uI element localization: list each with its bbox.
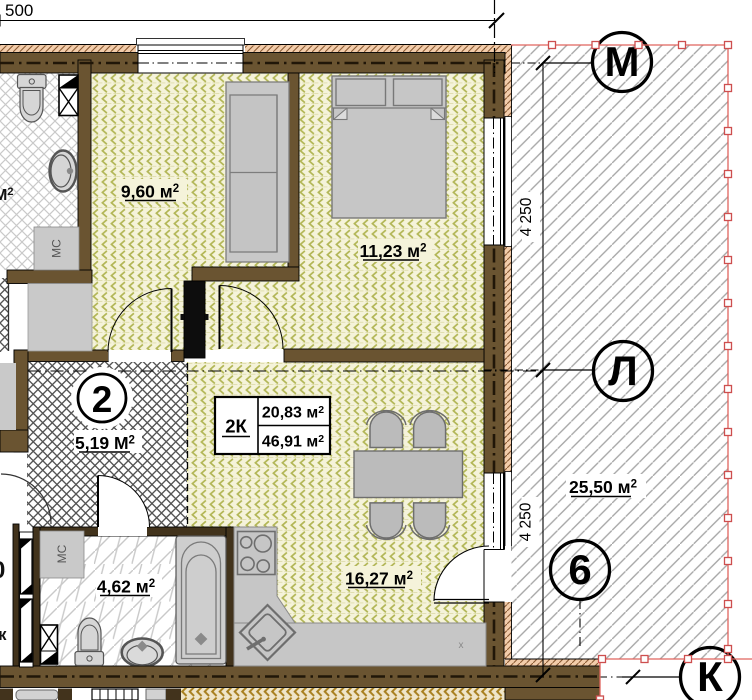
svg-text:4,62 м2: 4,62 м2 [97, 577, 155, 597]
svg-text:2К: 2К [225, 416, 247, 437]
svg-text:500: 500 [5, 1, 33, 20]
svg-text:МС: МС [55, 544, 69, 563]
svg-text:МС: МС [50, 239, 64, 258]
svg-text:20,83 м2: 20,83 м2 [262, 404, 324, 422]
svg-text:x: x [459, 640, 464, 651]
svg-text:46,91 м2: 46,91 м2 [262, 433, 324, 451]
svg-text:9,60 м2: 9,60 м2 [121, 182, 179, 202]
svg-text:0: 0 [0, 557, 5, 584]
svg-text:11,23 м2: 11,23 м2 [359, 241, 426, 261]
svg-text:25,50 м2: 25,50 м2 [569, 477, 637, 497]
svg-text:16,27 м2: 16,27 м2 [345, 569, 413, 589]
svg-text:Л: Л [608, 347, 637, 394]
svg-text:5,19 М2: 5,19 М2 [75, 433, 135, 453]
svg-text:6: 6 [568, 546, 591, 593]
svg-text:4 250: 4 250 [518, 197, 535, 236]
svg-text:2: 2 [92, 379, 113, 420]
svg-text:4 250: 4 250 [518, 502, 535, 541]
svg-text:К: К [697, 653, 723, 700]
svg-text:к: к [0, 625, 7, 644]
